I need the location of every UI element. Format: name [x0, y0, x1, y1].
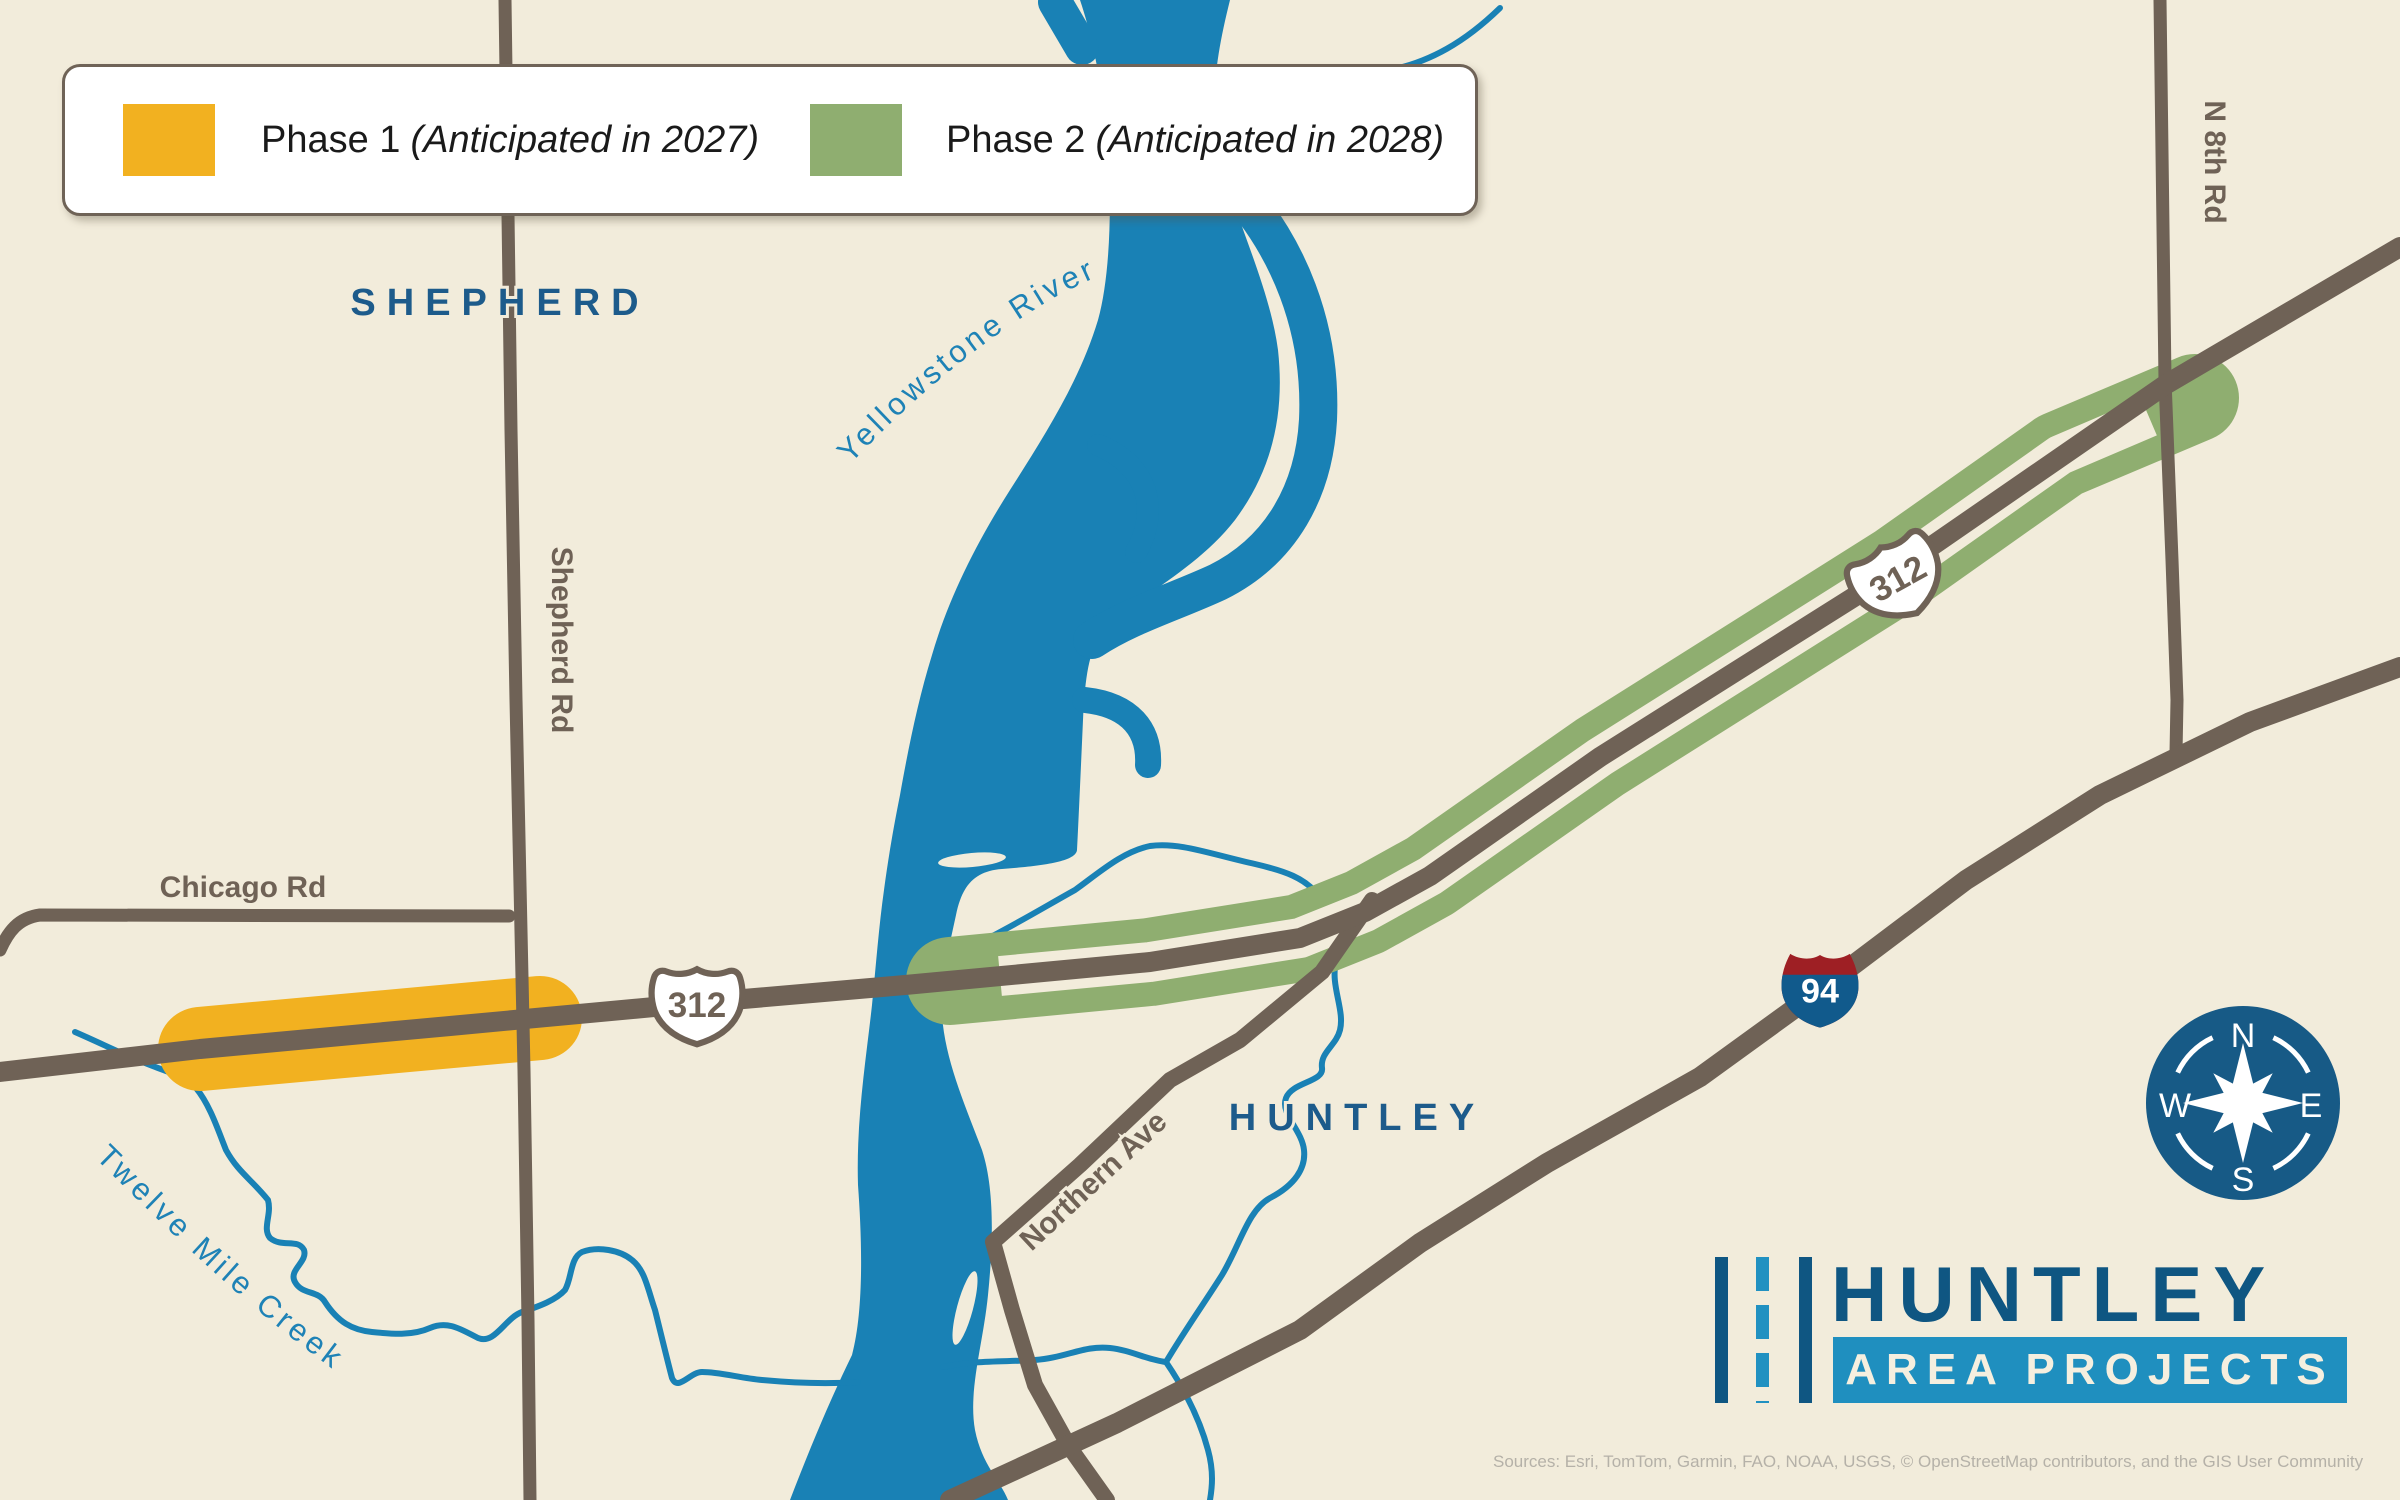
attribution-text: Sources: Esri, TomTom, Garmin, FAO, NOAA…: [1493, 1452, 2363, 1472]
svg-text:E: E: [2300, 1087, 2323, 1125]
svg-text:94: 94: [1801, 972, 1839, 1010]
logo-road-line-left: [1715, 1257, 1728, 1403]
svg-text:312: 312: [668, 986, 726, 1025]
svg-text:N: N: [2231, 1017, 2256, 1055]
road-label-northern-ave: Northern Ave: [1014, 1105, 1174, 1257]
logo-title: HUNTLEY: [1831, 1249, 2276, 1340]
phase1-legend-entry: Phase 1 (Anticipated in 2027): [261, 67, 759, 213]
phase1-label: Phase 1: [261, 119, 400, 162]
compass-rose: N E S W: [2146, 1006, 2340, 1200]
logo-road-centerline: [1756, 1257, 1769, 1403]
phase1-swatch: [123, 104, 215, 176]
phase2-note: (Anticipated in 2028): [1095, 119, 1444, 162]
road-label-shepherd: Shepherd Rd: [545, 547, 578, 734]
map-stage: 312 312 94 SHEPHERD HUNTLEY Chicago Rd S…: [0, 0, 2400, 1500]
logo-subtitle: AREA PROJECTS: [1833, 1337, 2347, 1403]
us312-shield-west: 312: [652, 969, 743, 1044]
svg-text:W: W: [2159, 1087, 2191, 1125]
yellowstone-river: [790, 0, 1318, 1500]
place-label-huntley: HUNTLEY: [1229, 1097, 1485, 1139]
road-shepherd: [505, 0, 530, 1500]
road-chicago: [0, 915, 509, 950]
phase2-legend-entry: Phase 2 (Anticipated in 2028): [946, 67, 1444, 213]
svg-text:S: S: [2232, 1161, 2255, 1199]
phase2-swatch: [810, 104, 902, 176]
phase2-label: Phase 2: [946, 119, 1085, 162]
road-label-chicago: Chicago Rd: [160, 871, 327, 904]
logo-road-line-right: [1799, 1257, 1812, 1403]
road-label-n8th: N 8th Rd: [2198, 100, 2231, 223]
legend-box: Phase 1 (Anticipated in 2027) Phase 2 (A…: [62, 64, 1478, 216]
phase1-note: (Anticipated in 2027): [410, 119, 759, 162]
place-label-shepherd: SHEPHERD: [350, 282, 649, 324]
water-label-twelve-mile: Twelve Mile Creek: [90, 1138, 352, 1377]
